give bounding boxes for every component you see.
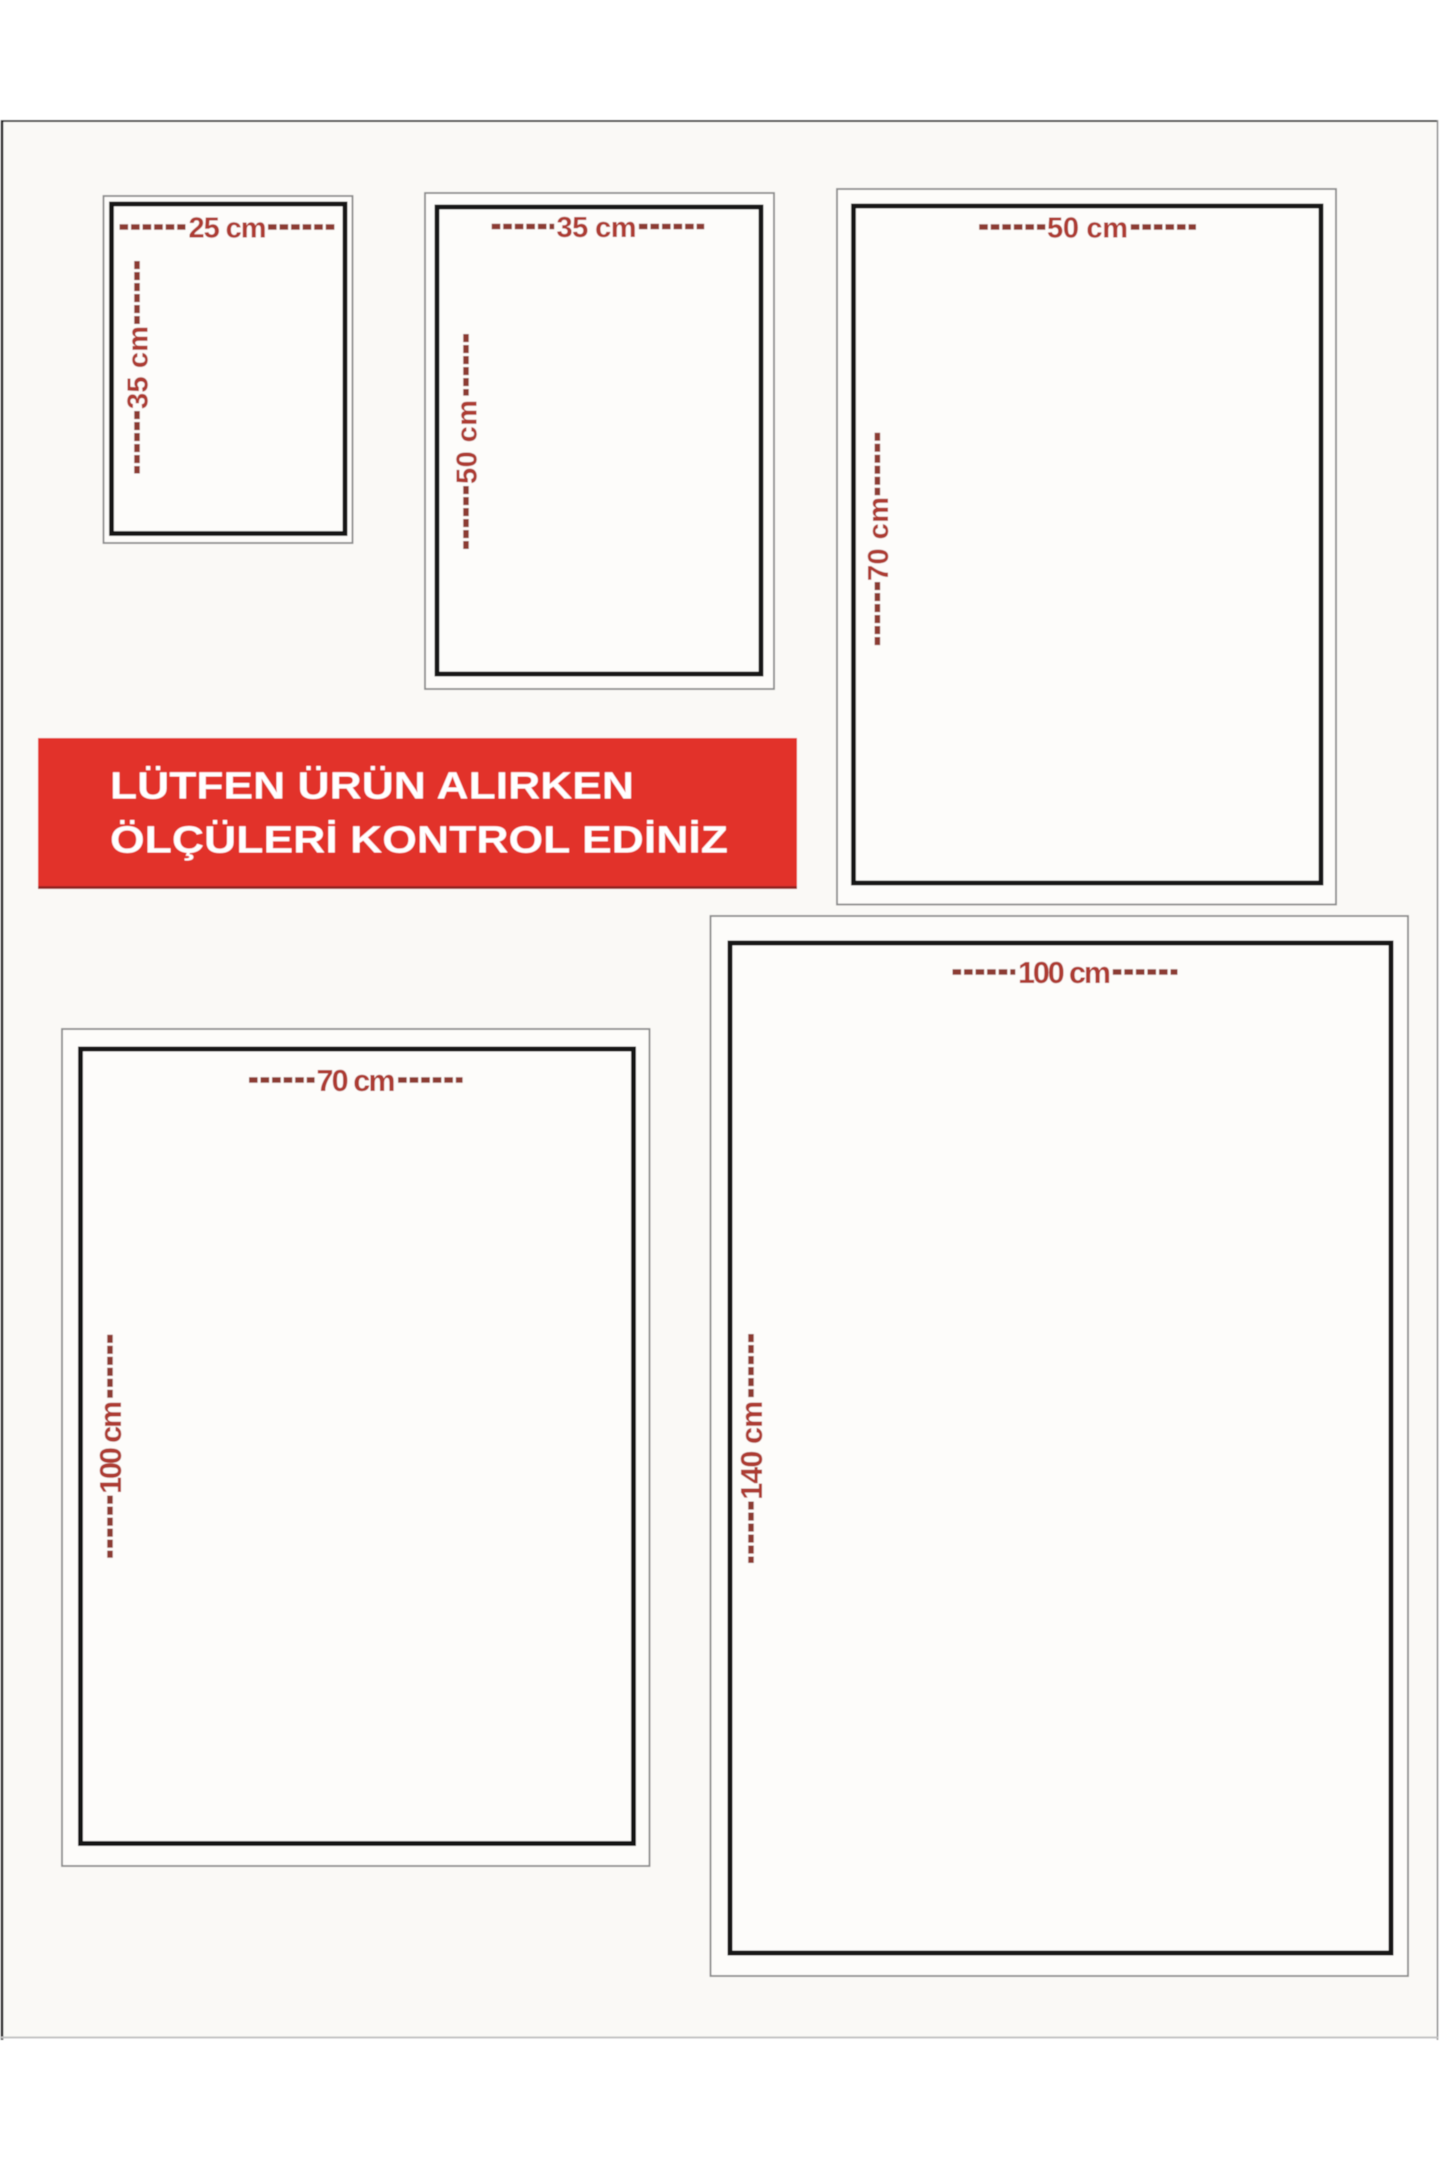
svg-text:100 cm: 100 cm	[94, 1401, 128, 1494]
svg-text:25 cm: 25 cm	[189, 213, 267, 245]
svg-text:70 cm: 70 cm	[317, 1064, 396, 1098]
svg-text:100 cm: 100 cm	[1018, 956, 1111, 990]
svg-text:LÜTFEN ÜRÜN ALIRKEN: LÜTFEN ÜRÜN ALIRKEN	[110, 765, 634, 808]
svg-text:70 cm: 70 cm	[863, 497, 895, 581]
svg-text:ÖLÇÜLERİ KONTROL EDİNİZ: ÖLÇÜLERİ KONTROL EDİNİZ	[110, 819, 728, 862]
svg-text:35 cm: 35 cm	[557, 212, 637, 244]
svg-text:35 cm: 35 cm	[122, 326, 154, 409]
svg-text:50 cm: 50 cm	[1047, 213, 1128, 245]
svg-text:140 cm: 140 cm	[735, 1401, 769, 1500]
svg-text:50 cm: 50 cm	[451, 400, 483, 484]
